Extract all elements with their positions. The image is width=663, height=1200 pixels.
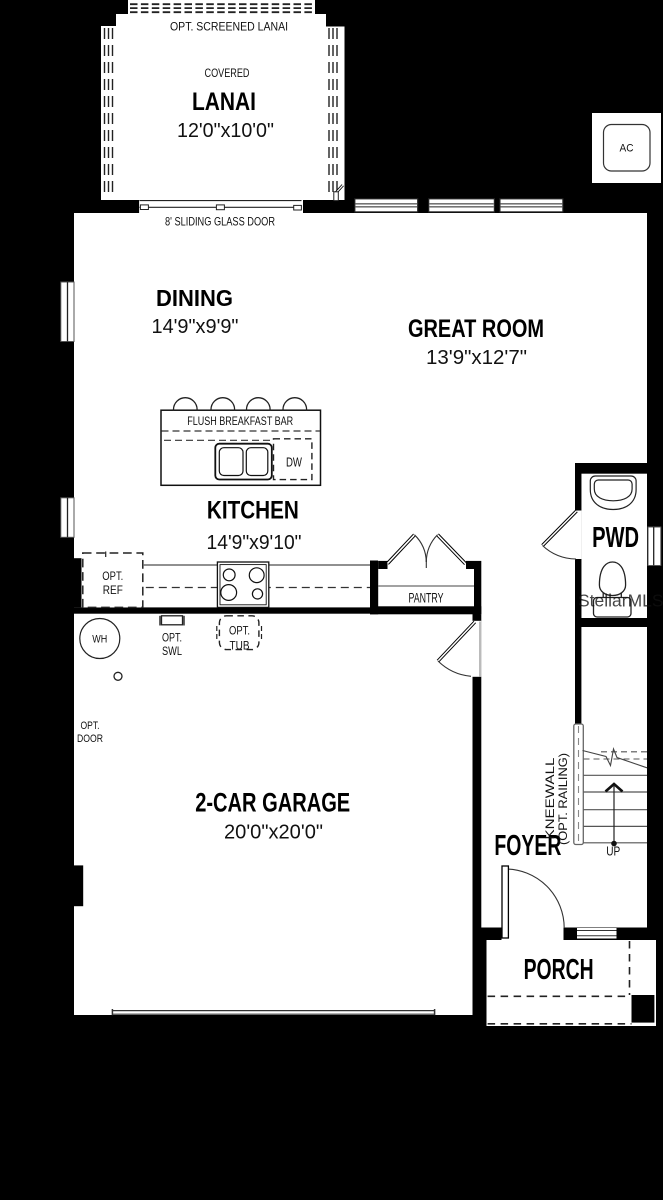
svg-text:FLUSH BREAKFAST BAR: FLUSH BREAKFAST BAR (187, 414, 293, 428)
svg-text:20'0"x20'0": 20'0"x20'0" (224, 821, 323, 844)
svg-text:2-CAR GARAGE: 2-CAR GARAGE (195, 788, 350, 818)
svg-text:PORCH: PORCH (524, 953, 594, 985)
svg-text:8' SLIDING GLASS DOOR: 8' SLIDING GLASS DOOR (165, 215, 275, 229)
svg-text:DOOR: DOOR (77, 733, 103, 745)
svg-text:12'0"x10'0": 12'0"x10'0" (177, 119, 274, 142)
svg-text:OPT.: OPT. (162, 633, 182, 645)
svg-text:StellarMLS: StellarMLS (578, 591, 663, 611)
svg-text:OPT.: OPT. (229, 626, 250, 638)
svg-text:14'9"x9'10": 14'9"x9'10" (207, 532, 302, 554)
svg-text:(OPT. RAILING): (OPT. RAILING) (556, 753, 570, 845)
svg-text:KITCHEN: KITCHEN (207, 498, 299, 525)
svg-text:LANAI: LANAI (192, 89, 256, 116)
svg-text:GREAT ROOM: GREAT ROOM (408, 316, 544, 343)
svg-text:13'9"x12'7": 13'9"x12'7" (426, 346, 527, 369)
svg-text:COVERED: COVERED (205, 66, 250, 80)
svg-text:DINING: DINING (156, 285, 233, 311)
svg-text:OPT.: OPT. (81, 720, 100, 732)
svg-text:PANTRY: PANTRY (409, 590, 444, 606)
svg-text:OPT.: OPT. (102, 571, 123, 583)
svg-text:PWD: PWD (592, 522, 639, 554)
svg-text:SWL: SWL (162, 646, 182, 658)
svg-text:TUB: TUB (230, 641, 250, 653)
svg-text:AC: AC (620, 143, 634, 155)
svg-text:14'9"x9'9": 14'9"x9'9" (152, 316, 239, 338)
svg-text:UP: UP (606, 845, 620, 859)
svg-text:REF: REF (103, 585, 123, 597)
svg-text:KNEEWALL: KNEEWALL (543, 757, 557, 839)
svg-text:DW: DW (286, 456, 302, 470)
svg-text:OPT. SCREENED LANAI: OPT. SCREENED LANAI (170, 22, 288, 34)
svg-text:WH: WH (92, 634, 107, 646)
